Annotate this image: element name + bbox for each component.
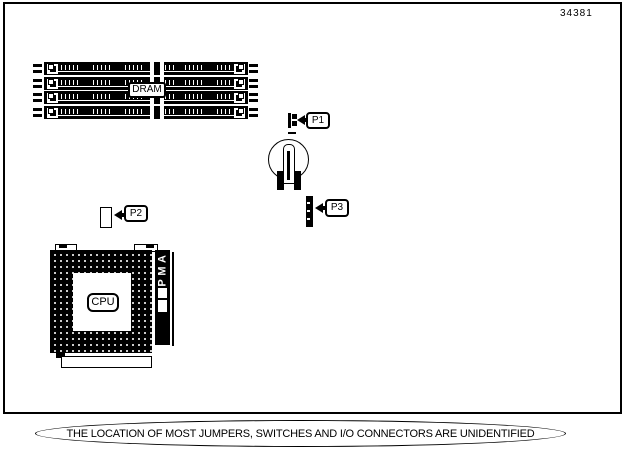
- dram-chip-pins: [61, 65, 231, 70]
- jumper-p1-mark: [288, 132, 296, 134]
- battery-leg: [294, 171, 301, 190]
- clip-icon: [234, 93, 245, 103]
- dram-center-notch: [150, 62, 164, 75]
- dram-center-notch: [150, 106, 164, 119]
- dram-module: [33, 62, 259, 75]
- jumper-p2-icon: [100, 207, 112, 228]
- dram-tab-icon: [33, 78, 43, 89]
- dram-tab-icon: [249, 92, 259, 103]
- dram-pcb-line: [47, 115, 245, 116]
- jumper-p2-label: P2: [124, 205, 148, 222]
- clip-icon: [47, 93, 58, 103]
- part-number: 34381: [560, 8, 593, 19]
- dram-label: DRAM: [128, 82, 166, 98]
- clip-icon: [234, 108, 245, 118]
- socket-bottom-bar: [61, 356, 152, 368]
- amp-shadow-line: [172, 252, 174, 346]
- footnote-ellipse: THE LOCATION OF MOST JUMPERS, SWITCHES A…: [35, 420, 566, 447]
- jumper-p1-icon: [288, 113, 291, 128]
- motherboard-diagram: 34381: [0, 0, 626, 453]
- amp-notch: [158, 288, 167, 298]
- dram-tab-icon: [33, 63, 43, 74]
- dram-pcb-line: [47, 71, 245, 72]
- clip-icon: [47, 108, 58, 118]
- jumper-p3-label: P3: [325, 199, 349, 217]
- amp-connector: A M P: [155, 250, 170, 345]
- dram-chip-pins: [61, 109, 231, 114]
- dram-tab-icon: [249, 107, 259, 118]
- dram-module-body: [44, 106, 248, 119]
- cpu-label: CPU: [87, 293, 119, 312]
- dram-bank: DRAM: [33, 62, 259, 120]
- battery-pin: [287, 151, 290, 180]
- dram-tab-icon: [33, 92, 43, 103]
- footnote-text: THE LOCATION OF MOST JUMPERS, SWITCHES A…: [66, 428, 534, 440]
- dram-tab-icon: [249, 78, 259, 89]
- clip-icon: [47, 79, 58, 89]
- amp-notch: [158, 300, 167, 312]
- dram-pcb-line: [47, 100, 245, 101]
- clip-icon: [47, 64, 58, 74]
- clip-icon: [234, 79, 245, 89]
- clip-icon: [234, 64, 245, 74]
- dram-tab-icon: [249, 63, 259, 74]
- jumper-p3-icon: [306, 196, 313, 227]
- dram-module: [33, 106, 259, 119]
- dram-module-body: [44, 62, 248, 75]
- jumper-p1-label: P1: [306, 112, 330, 129]
- dram-tab-icon: [33, 107, 43, 118]
